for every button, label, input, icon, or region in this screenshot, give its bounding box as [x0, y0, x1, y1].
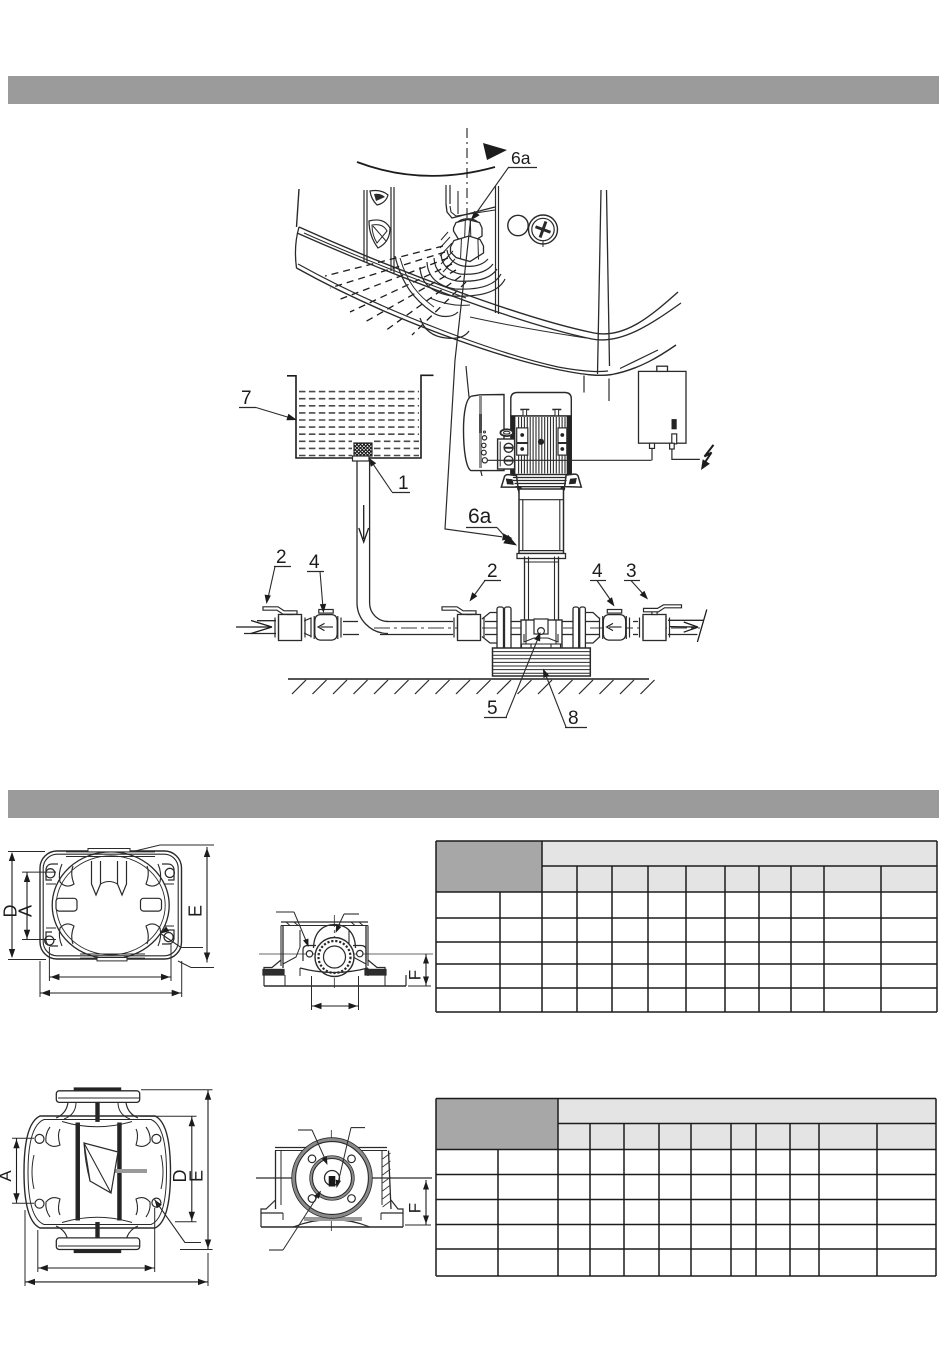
svg-text:7: 7 — [241, 388, 252, 409]
svg-text:F: F — [406, 970, 425, 980]
svg-text:6a: 6a — [468, 505, 492, 528]
svg-text:A: A — [16, 905, 36, 917]
svg-text:F: F — [406, 1203, 425, 1213]
svg-text:5: 5 — [487, 698, 498, 719]
svg-text:2: 2 — [276, 547, 287, 568]
svg-text:3: 3 — [626, 561, 637, 582]
svg-text:4: 4 — [592, 561, 603, 582]
svg-text:E: E — [186, 1170, 206, 1182]
svg-text:E: E — [186, 905, 206, 917]
svg-text:A: A — [0, 1170, 15, 1182]
svg-text:1: 1 — [398, 473, 409, 494]
svg-text:4: 4 — [309, 552, 320, 573]
svg-text:2: 2 — [487, 561, 498, 582]
svg-text:8: 8 — [568, 708, 579, 729]
svg-text:6a: 6a — [511, 148, 531, 168]
